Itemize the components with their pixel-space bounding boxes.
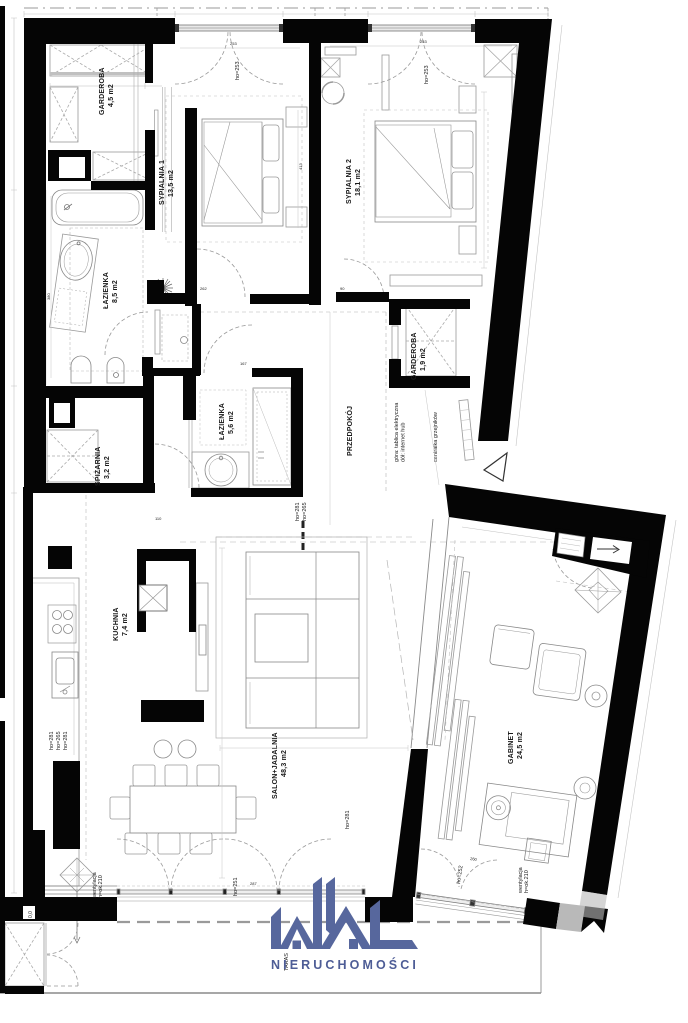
svg-text:0,0: 0,0 — [28, 911, 34, 918]
svg-text:380: 380 — [46, 293, 51, 300]
svg-text:ho=251: ho=251 — [233, 877, 239, 896]
svg-text:ho=265: ho=265 — [302, 502, 308, 521]
svg-text:167: 167 — [240, 361, 247, 366]
svg-text:ho=281: ho=281 — [49, 731, 55, 750]
svg-text:NIERUCHOMOŚCI: NIERUCHOMOŚCI — [271, 957, 419, 972]
svg-text:253: 253 — [230, 41, 237, 46]
svg-text:262: 262 — [200, 286, 207, 291]
svg-text:413: 413 — [298, 163, 303, 170]
svg-text:ho=281: ho=281 — [63, 731, 69, 750]
svg-text:90: 90 — [340, 286, 345, 291]
svg-text:ho=281: ho=281 — [295, 502, 301, 521]
svg-text:287: 287 — [250, 881, 257, 886]
svg-text:wentylacjah=ok.210: wentylacjah=ok.210 — [518, 866, 530, 894]
svg-text:110: 110 — [155, 516, 162, 521]
svg-text:wentylacjah=ok.210: wentylacjah=ok.210 — [92, 871, 104, 899]
svg-text:PRZEDPOKÓJ: PRZEDPOKÓJ — [345, 406, 354, 456]
svg-text:ho=253: ho=253 — [424, 65, 430, 84]
svg-text:253: 253 — [420, 39, 427, 44]
svg-text:centralka grzejników: centralka grzejników — [433, 412, 439, 462]
svg-text:ho=281: ho=281 — [345, 810, 351, 829]
svg-text:ho=253: ho=253 — [235, 61, 241, 80]
svg-text:ho=265: ho=265 — [56, 731, 62, 750]
